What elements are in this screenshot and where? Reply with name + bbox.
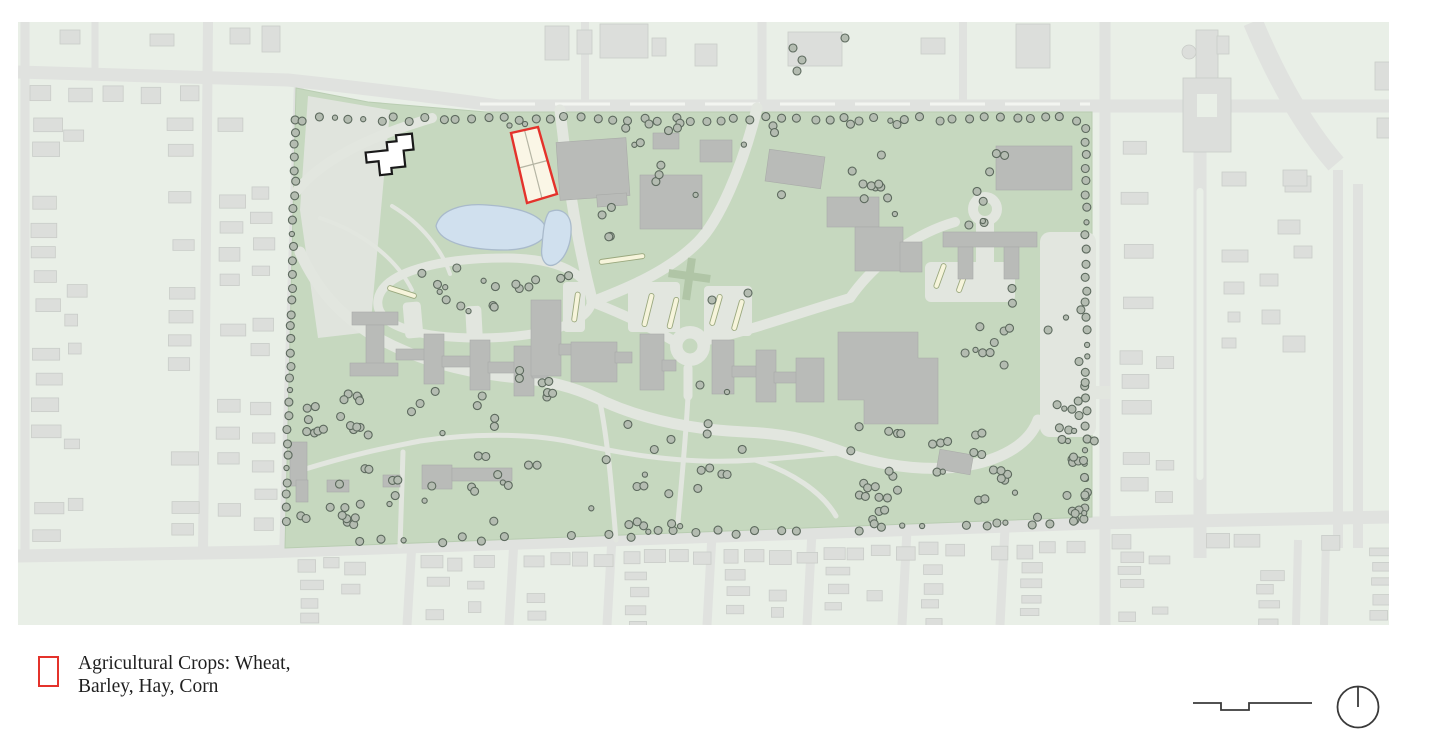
legend-label: Agricultural Crops: Wheat, Barley, Hay, … (78, 652, 290, 698)
church-building (1182, 30, 1231, 152)
legend-swatch-agricultural-crops (38, 656, 59, 687)
campus-map-svg (0, 0, 1434, 740)
legend: Agricultural Crops: Wheat, Barley, Hay, … (38, 652, 290, 698)
map-root (18, 22, 1394, 631)
legend-label-line1: Agricultural Crops: Wheat, (78, 652, 290, 675)
site-plan-page: Agricultural Crops: Wheat, Barley, Hay, … (0, 0, 1434, 740)
legend-label-line2: Barley, Hay, Corn (78, 675, 290, 698)
